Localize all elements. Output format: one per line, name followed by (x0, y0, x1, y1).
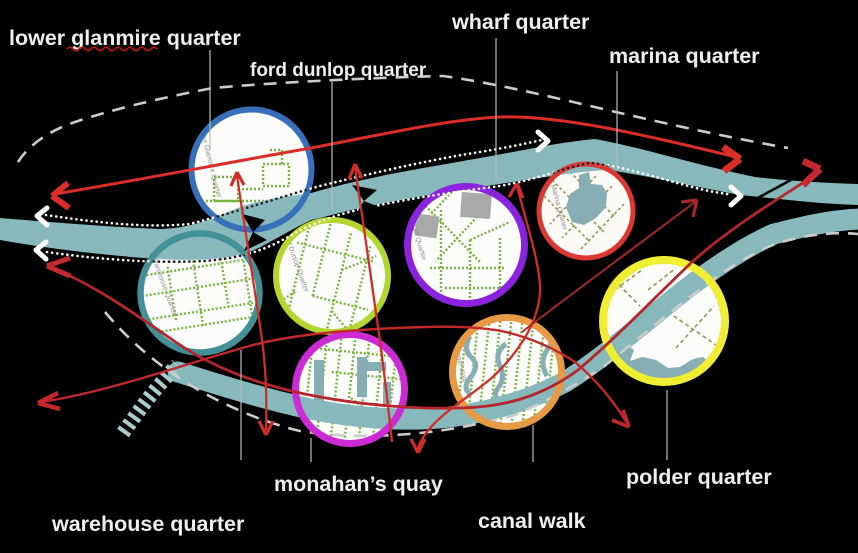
svg-text:ford dunlop quarter: ford dunlop quarter (250, 60, 427, 81)
svg-text:canal walk: canal walk (478, 509, 586, 533)
svg-text:marina quarter: marina quarter (609, 44, 760, 68)
svg-text:wharf quarter: wharf quarter (451, 10, 590, 34)
svg-text:monahan’s quay: monahan’s quay (274, 472, 443, 496)
svg-text:polder quarter: polder quarter (626, 465, 772, 489)
svg-text:lower glanmire quarter: lower glanmire quarter (9, 26, 241, 50)
svg-text:warehouse quarter: warehouse quarter (51, 512, 245, 536)
